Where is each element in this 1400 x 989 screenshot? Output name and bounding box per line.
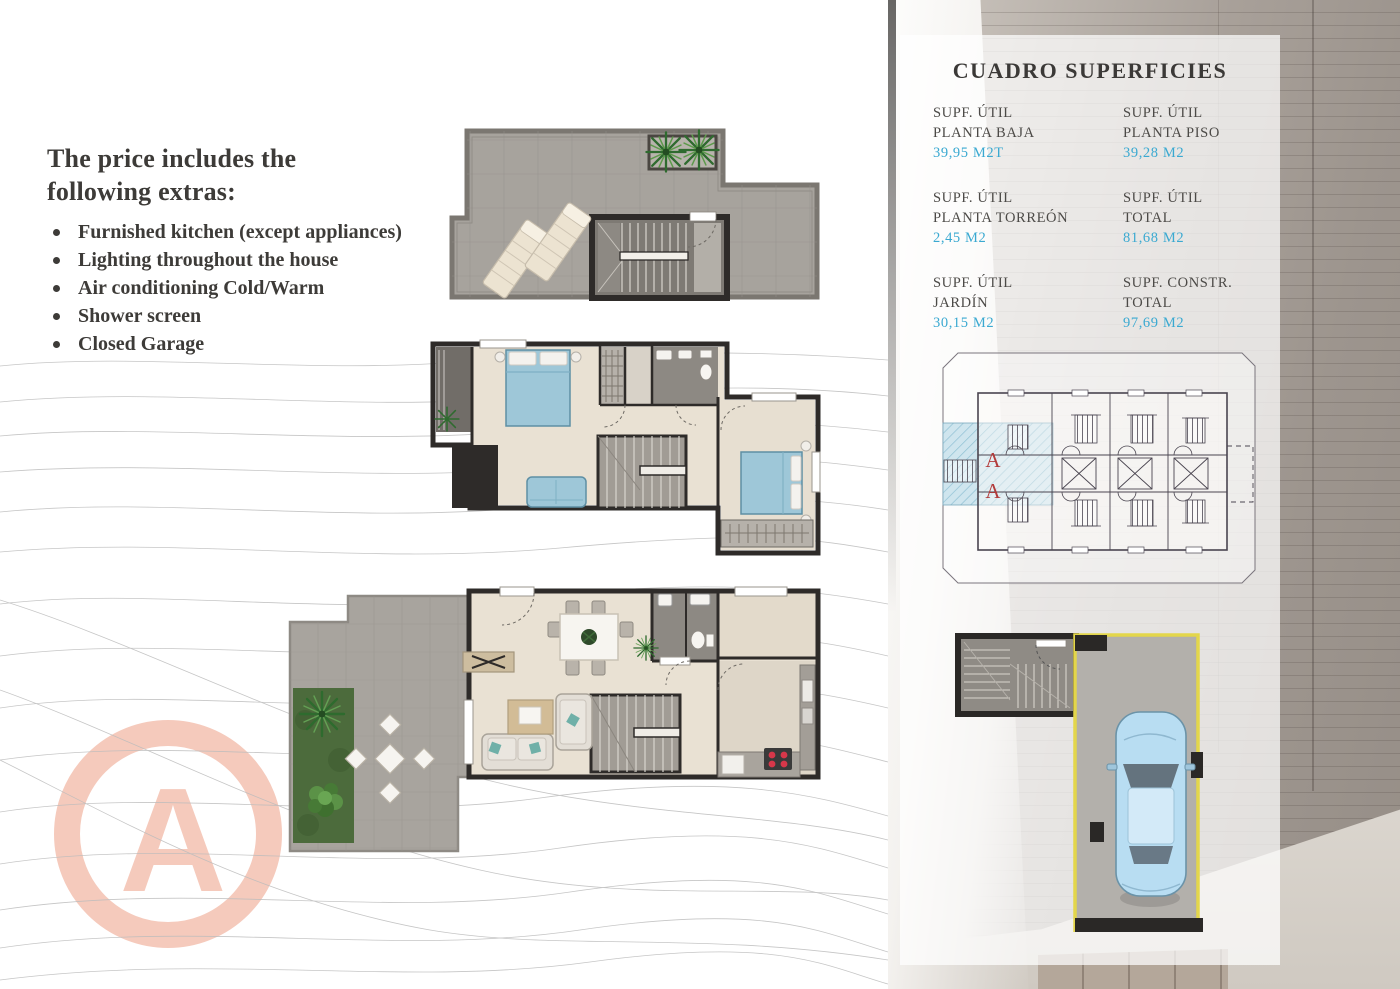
surface-entry: SUPF. ÚTILTOTAL 81,68 M2 (1123, 188, 1263, 248)
surface-entry: SUPF. CONSTR.TOTAL 97,69 M2 (1123, 273, 1263, 333)
surface-entry: SUPF. ÚTILPLANTA PISO 39,28 M2 (1123, 103, 1263, 163)
car-top-view (1107, 712, 1195, 907)
surface-entry: SUPF. ÚTILPLANTA TORREÓN 2,45 M2 (933, 188, 1111, 248)
surface-entry: SUPF. ÚTILPLANTA BAJA 39,95 M2T (933, 103, 1111, 163)
bullet-icon (53, 313, 60, 320)
roof-terrace-floor-plan (440, 115, 860, 335)
entrance-steps (944, 460, 976, 482)
surface-value: 81,68 M2 (1123, 228, 1263, 248)
wardrobe (721, 520, 813, 547)
ground-floor-plan (283, 585, 855, 935)
list-item: Shower screen (47, 302, 407, 330)
rear-window (1129, 846, 1173, 864)
roof-stairwell (592, 212, 727, 298)
bedside-table (571, 352, 581, 362)
bullet-icon (53, 229, 60, 236)
bedside-table (495, 352, 505, 362)
wall-mass (452, 445, 498, 508)
stair-handrail (640, 466, 686, 475)
bullet-icon (53, 257, 60, 264)
side-mirror (1107, 764, 1117, 770)
surfaces-table-title: CUADRO SUPERFICIES (900, 58, 1280, 84)
stair-handrail (634, 728, 680, 737)
price-includes-block: The price includes the following extras:… (47, 142, 407, 358)
site-block-plan: A A (938, 350, 1260, 586)
first-floor-plan (425, 338, 825, 560)
roof-planter (646, 130, 718, 171)
surface-value: 39,28 M2 (1123, 143, 1263, 163)
bedside-table (801, 441, 811, 451)
hall (625, 347, 652, 405)
surface-value: 2,45 M2 (933, 228, 1111, 248)
porch-room (718, 591, 818, 658)
extras-list: Furnished kitchen (except appliances) Li… (47, 218, 407, 358)
stairs (598, 436, 686, 508)
list-item: Air conditioning Cold/Warm (47, 274, 407, 302)
indoor-plant (634, 636, 658, 660)
sofa (527, 477, 586, 507)
list-item: Closed Garage (47, 330, 407, 358)
double-bed-2 (741, 441, 811, 525)
stair-handrail (620, 252, 688, 260)
brochure-page: A The price includes the follo (0, 0, 1400, 989)
bullet-icon (53, 341, 60, 348)
list-item: Lighting throughout the house (47, 246, 407, 274)
sideboard (463, 652, 514, 672)
stairs (591, 695, 680, 772)
surface-value: 30,15 M2 (933, 313, 1111, 333)
side-mirror (1185, 764, 1195, 770)
door-opening (690, 212, 716, 221)
windshield (1123, 764, 1179, 788)
garage-plan (950, 625, 1210, 940)
garden (293, 688, 354, 843)
surfaces-table: SUPF. ÚTILPLANTA BAJA 39,95 M2T SUPF. ÚT… (933, 103, 1263, 333)
bullet-icon (53, 285, 60, 292)
surface-value: 97,69 M2 (1123, 313, 1263, 333)
surface-entry: SUPF. ÚTILJARDÍN 30,15 M2 (933, 273, 1111, 333)
extras-heading: The price includes the following extras: (47, 142, 407, 208)
garage-stairwell (958, 636, 1076, 714)
door-opening (1036, 640, 1066, 647)
list-item: Furnished kitchen (except appliances) (47, 218, 407, 246)
hob (764, 748, 792, 770)
building-outline (978, 393, 1227, 550)
sink (802, 680, 813, 702)
double-bed-1 (495, 350, 581, 426)
unit-a-label: A (985, 479, 1001, 503)
surface-value: 39,95 M2T (933, 143, 1111, 163)
unit-a-label: A (985, 448, 1001, 472)
